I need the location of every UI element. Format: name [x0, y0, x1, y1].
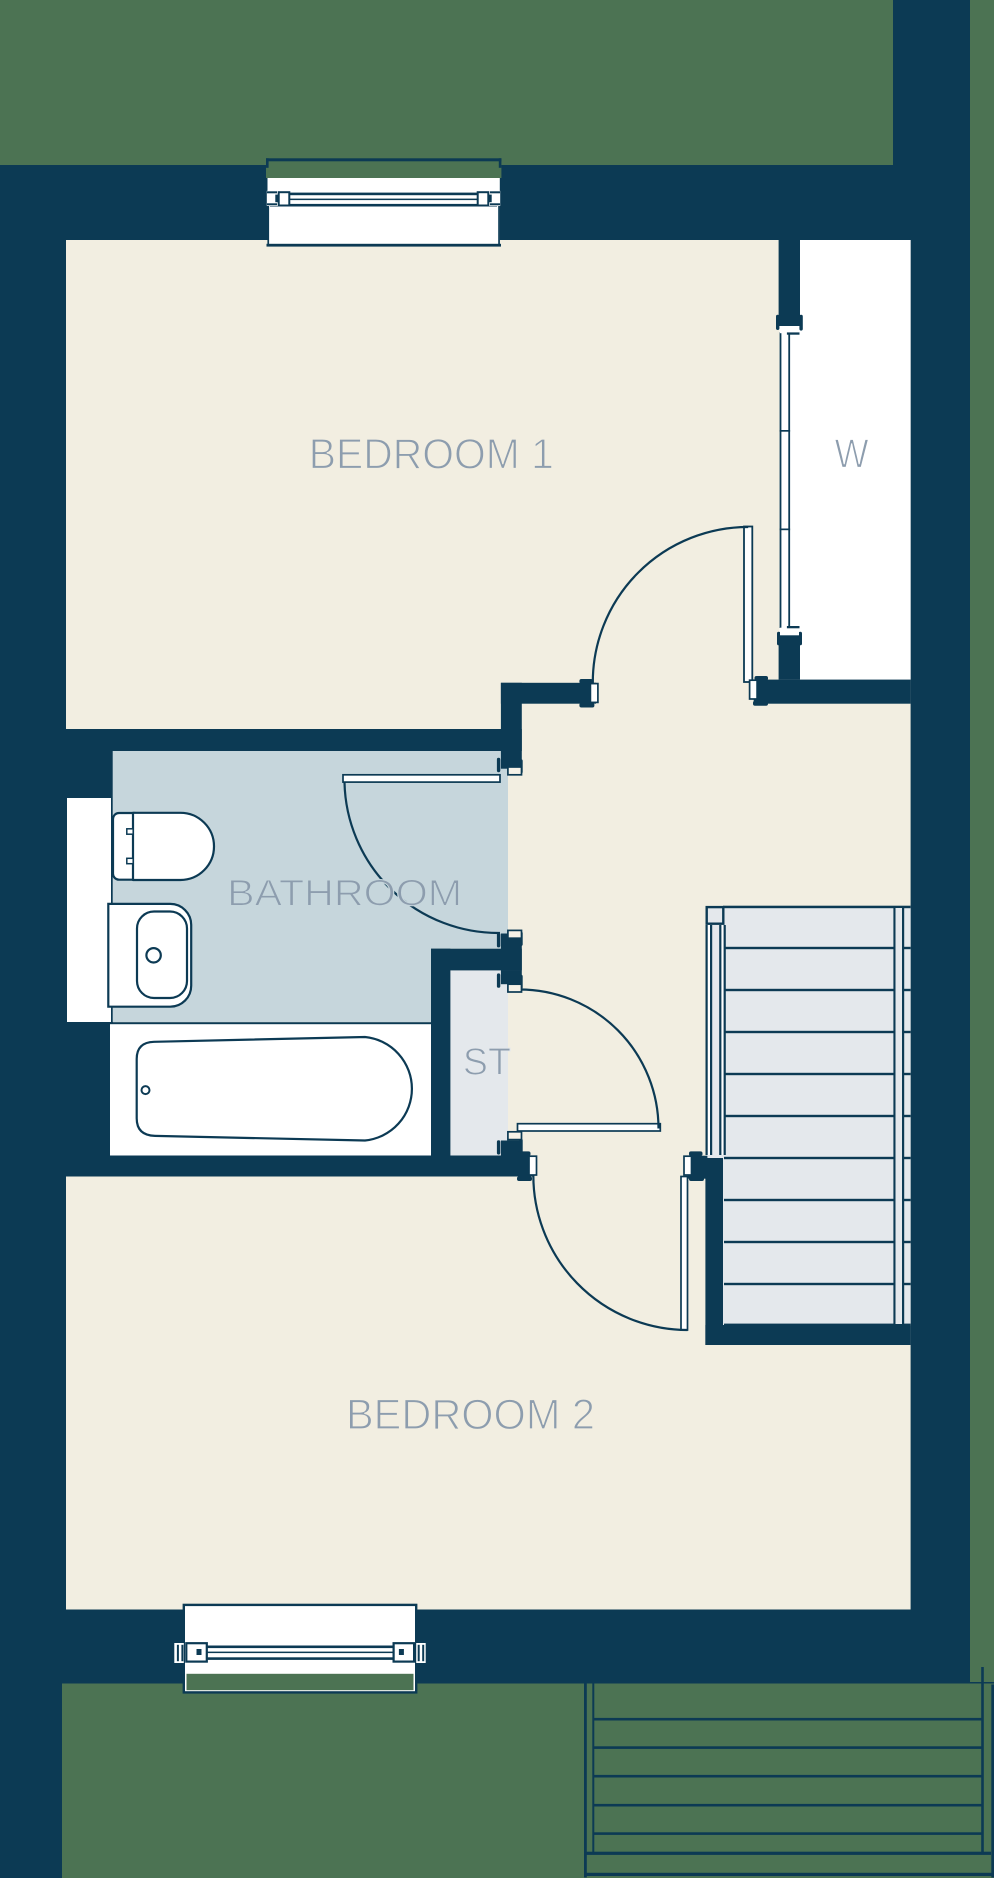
svg-text:BEDROOM 2: BEDROOM 2 — [346, 1392, 595, 1439]
svg-text:ST: ST — [463, 1042, 511, 1084]
svg-text:BATHROOM: BATHROOM — [227, 872, 462, 913]
svg-text:W: W — [835, 431, 869, 477]
svg-text:BEDROOM 1: BEDROOM 1 — [309, 432, 554, 479]
